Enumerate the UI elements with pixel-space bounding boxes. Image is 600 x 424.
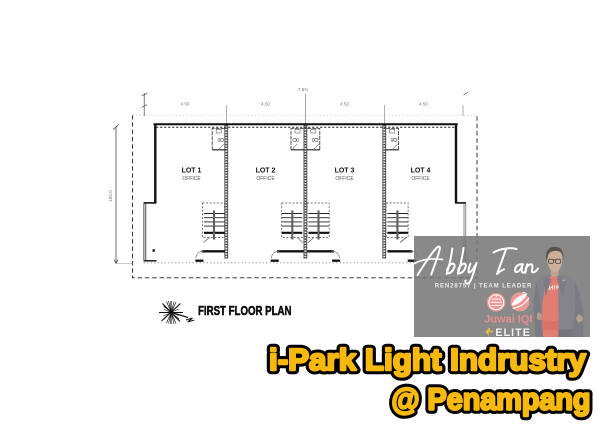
svg-text:OFFICE: OFFICE [182,176,201,182]
svg-text:LOT 4: LOT 4 [411,167,431,174]
svg-text:150.0: 150.0 [108,190,113,202]
svg-text:4.50: 4.50 [340,102,349,107]
svg-text:i-Park Light Indrustry: i-Park Light Indrustry [269,343,586,377]
svg-text:@ Penampang: @ Penampang [392,382,591,416]
svg-text:OFFICE: OFFICE [335,176,354,182]
svg-text:LOT 2: LOT 2 [256,167,276,174]
svg-text:4.50: 4.50 [181,102,190,107]
svg-text:OFFICE: OFFICE [256,176,275,182]
svg-text:7.5¾: 7.5¾ [298,87,308,92]
svg-text:Juwai IQI: Juwai IQI [484,313,532,325]
svg-text:4.50: 4.50 [419,102,428,107]
svg-text:LOT 1: LOT 1 [182,167,202,174]
svg-text:FIRST FLOOR PLAN: FIRST FLOOR PLAN [198,304,292,318]
svg-text:REN28757 | TEAM LEADER: REN28757 | TEAM LEADER [435,282,533,289]
svg-text:LOT 3: LOT 3 [335,167,355,174]
svg-text:ELITE: ELITE [496,327,532,337]
svg-text:4.50: 4.50 [261,102,270,107]
svg-text:OFFICE: OFFICE [411,176,430,182]
